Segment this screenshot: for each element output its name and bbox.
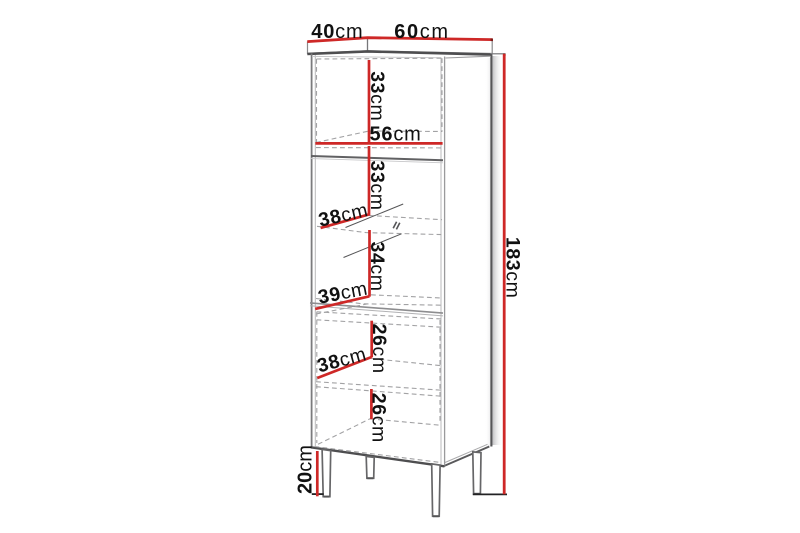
svg-text:38cm: 38cm bbox=[317, 199, 371, 232]
svg-text:26cm: 26cm bbox=[368, 324, 390, 374]
svg-text:33cm: 33cm bbox=[366, 161, 388, 211]
svg-text:38cm: 38cm bbox=[315, 343, 369, 377]
svg-text:39cm: 39cm bbox=[316, 278, 369, 309]
svg-text:40cm: 40cm bbox=[311, 21, 363, 43]
svg-text:183cm: 183cm bbox=[501, 237, 523, 299]
svg-text:26cm: 26cm bbox=[367, 393, 389, 443]
svg-text:33cm: 33cm bbox=[366, 71, 388, 121]
svg-text:60cm: 60cm bbox=[394, 21, 449, 43]
svg-text:20cm: 20cm bbox=[294, 445, 316, 494]
svg-text:34cm: 34cm bbox=[366, 242, 388, 292]
svg-text:56cm: 56cm bbox=[370, 124, 422, 146]
